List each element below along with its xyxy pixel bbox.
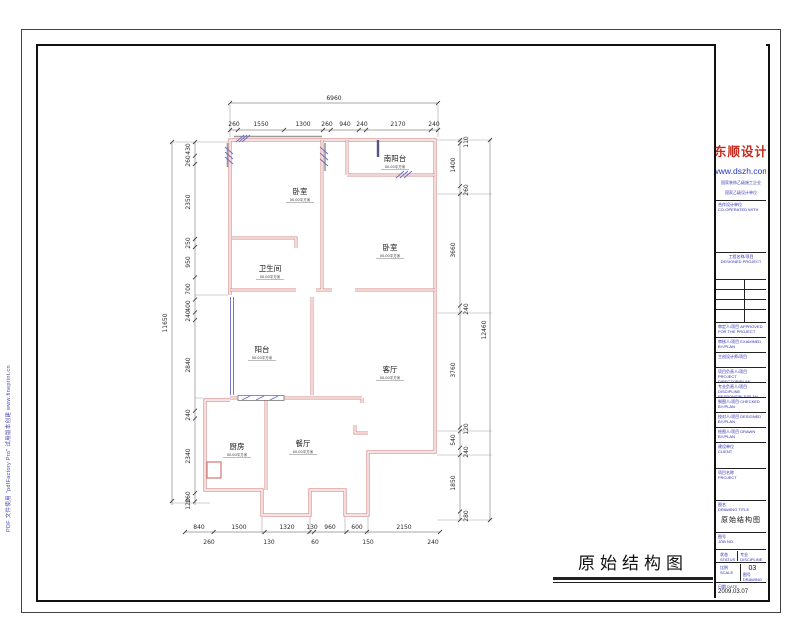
- field-label-en: PROJECT: [718, 475, 764, 480]
- dim-label: 950: [185, 256, 192, 268]
- dim-label: 700: [185, 283, 192, 295]
- approver-row: 审定人/项目 APPROVED FOR THE PROJECT: [716, 323, 766, 338]
- dim-label: 11650: [162, 313, 169, 332]
- dim-label: 2150: [396, 524, 411, 531]
- dim-label: 120: [185, 498, 192, 510]
- dim-label: 110: [463, 136, 470, 148]
- dim-label: 2170: [390, 121, 405, 128]
- job-no-row: 图号 JOB NO.: [716, 533, 766, 550]
- chief-designer-row: 主创设计师/项目: [716, 353, 766, 368]
- dim-label: 150: [362, 539, 374, 546]
- dim-label: 260: [321, 121, 333, 128]
- dim-label: 240: [427, 539, 439, 546]
- walls: [205, 140, 435, 515]
- company-cert-2: 国家乙级设计单位: [725, 190, 757, 196]
- title-block: 东顺设计 www.dszh.com 国家装饰乙级施工企业 国家乙级设计单位 合作…: [714, 44, 766, 598]
- dim-label: 2340: [185, 448, 192, 463]
- dim-label: 60: [311, 539, 319, 546]
- dim-label: 1320: [279, 524, 294, 531]
- company-logo-area: 东顺设计 www.dszh.com 国家装饰乙级施工企业 国家乙级设计单位: [716, 44, 766, 201]
- company-name: 东顺设计: [716, 141, 766, 160]
- project-row: 项目名称 PROJECT: [716, 469, 766, 501]
- dim-label: 540: [450, 434, 457, 446]
- pdf-watermark: PDF 文件使用 "pdfFactory Pro" 试用版本创建 www.fin…: [4, 232, 12, 532]
- dim-label: 240: [185, 409, 192, 421]
- room-area-note: 00.00平方米: [380, 253, 401, 258]
- field-label-en: CO-OPERATED WITH: [718, 207, 764, 212]
- dim-label: 240: [463, 446, 470, 458]
- proofreader-row: 校对人/项目 DESIGNED BY/PLAN: [716, 413, 766, 428]
- dim-label: 1850: [450, 475, 457, 490]
- status-label-en: STATUS: [720, 557, 735, 562]
- dim-label: 1400: [450, 157, 457, 172]
- floor-plan: 6960 260 1550 1300 260 940 240 2170 240 …: [150, 85, 530, 555]
- drawing-title-value: 原始结构图: [718, 515, 764, 525]
- coop-design-row: 合作设计单位 CO-OPERATED WITH: [716, 201, 766, 253]
- cad-sheet: { "sheet": { "watermark": "PDF 文件使用 \"pd…: [0, 0, 800, 640]
- room-label-living-room: 客厅: [383, 364, 398, 374]
- room-note-underlines: [223, 170, 409, 458]
- field-label-en: DRAWING TITLE: [718, 507, 764, 512]
- field-label-en: JOB NO.: [718, 539, 764, 544]
- dim-label: 940: [339, 121, 351, 128]
- drawer-row: 绘图人/项目 DRAWN BY/PLAN: [716, 428, 766, 443]
- room-area-note: 00.00平方米: [380, 375, 401, 380]
- dim-label: 240: [428, 121, 440, 128]
- sheet-title-block: 原始结构图: [553, 549, 713, 583]
- company-cert-1: 国家装饰乙级施工企业: [721, 180, 761, 186]
- sheet-title-text: 原始结构图: [553, 549, 713, 574]
- field-label-en: PROJECT DIRECTOR/PLAN: [718, 374, 750, 383]
- dim-label: 400: [185, 300, 192, 312]
- room-label-balcony: 阳台: [255, 344, 270, 354]
- kitchen-flue: [207, 462, 221, 478]
- room-area-note: 00.00平方米: [227, 452, 248, 457]
- room-area-note: 00.00平方米: [293, 449, 314, 454]
- dim-label: 240: [356, 121, 368, 128]
- dim-label: 130: [306, 524, 318, 531]
- dim-label: 600: [351, 524, 363, 531]
- project-name-grid-row: 工程名称/项目 DESIGNED PROJECT: [716, 253, 766, 323]
- examiner-row: 审核人/项目 EXAMINED BY/PLAN: [716, 338, 766, 353]
- company-url: www.dszh.com: [716, 166, 766, 176]
- dim-label: 280: [463, 510, 470, 522]
- room-label-bedroom-2: 卧室: [383, 242, 398, 252]
- date-row: 日期 DATE 2009.03.07: [716, 583, 766, 598]
- status-discipline-row: 状态STATUS 专业DISCIPLINE: [716, 550, 766, 563]
- dim-label: 6960: [326, 95, 341, 102]
- dim-label: 120: [463, 423, 470, 435]
- dim-label: 250: [185, 237, 192, 249]
- scale-label-en: SCALE: [720, 570, 738, 575]
- dim-label: 260: [203, 539, 215, 546]
- scale-number-row: 比例 SCALE 1:80 03 图号 DRAWING NO.: [716, 563, 766, 583]
- dim-label: 2840: [185, 357, 192, 372]
- room-area-note: 00.00平方米: [385, 164, 406, 169]
- dim-label: 240: [185, 310, 192, 322]
- project-director-row: 项目负责人/项目 PROJECT DIRECTOR/PLAN: [716, 368, 766, 383]
- room-area-note: 00.00平方米: [260, 274, 281, 279]
- drawing-title-row: 图名 DRAWING TITLE 原始结构图: [716, 501, 766, 533]
- room-label-bathroom: 卫生间: [259, 263, 282, 273]
- dim-label: 1500: [231, 524, 246, 531]
- room-label-bedroom-1: 卧室: [293, 186, 308, 196]
- room-label-dining: 餐厅: [296, 439, 311, 448]
- field-label-en: DISCIPLINE RESPONSIBLE/PLAN: [718, 389, 758, 398]
- title-underline-thick: [553, 577, 713, 580]
- field-label-en: DESIGNED PROJECT: [718, 259, 764, 264]
- dimension-lines: [172, 103, 490, 532]
- discipline-label-en: DISCIPLINE: [740, 557, 762, 562]
- field-label-en: CLIENT: [718, 449, 764, 454]
- dim-label: 260: [228, 121, 240, 128]
- dim-label: 960: [324, 524, 336, 531]
- tick-marks: [170, 101, 492, 534]
- dim-label: 3760: [450, 362, 457, 377]
- dim-label: 240: [463, 303, 470, 315]
- drawing-number-value: 03: [743, 565, 762, 572]
- field-label-cn: 主创设计师/项目: [718, 354, 747, 359]
- dim-label: 260: [463, 184, 470, 196]
- dim-label: 260: [185, 155, 192, 167]
- room-label-kitchen: 厨房: [230, 441, 245, 451]
- dim-label: 130: [263, 539, 275, 546]
- date-value: 2009.03.07: [718, 589, 748, 595]
- dim-label: 840: [193, 524, 205, 531]
- dim-label: 12460: [481, 320, 488, 339]
- draftsman-row: 制图人/项目 CHECKED BY/PLAN: [716, 398, 766, 413]
- dim-label: 1550: [253, 121, 268, 128]
- dim-label: 1300: [295, 121, 310, 128]
- room-area-note: 00.00平方米: [252, 355, 273, 360]
- extension-lines: [172, 105, 492, 534]
- title-underline-thin: [553, 582, 713, 583]
- client-row: 建设单位 CLIENT: [716, 443, 766, 469]
- dim-label: 430: [185, 143, 192, 155]
- empty-grid: [716, 279, 766, 322]
- dim-label: 3660: [450, 242, 457, 257]
- room-area-note: 00.00平方米: [290, 197, 311, 202]
- room-label-south-balcony: 南阳台: [384, 153, 407, 163]
- discipline-lead-row: 专业负责人/项目 DISCIPLINE RESPONSIBLE/PLAN: [716, 383, 766, 398]
- dim-label: 2350: [185, 194, 192, 209]
